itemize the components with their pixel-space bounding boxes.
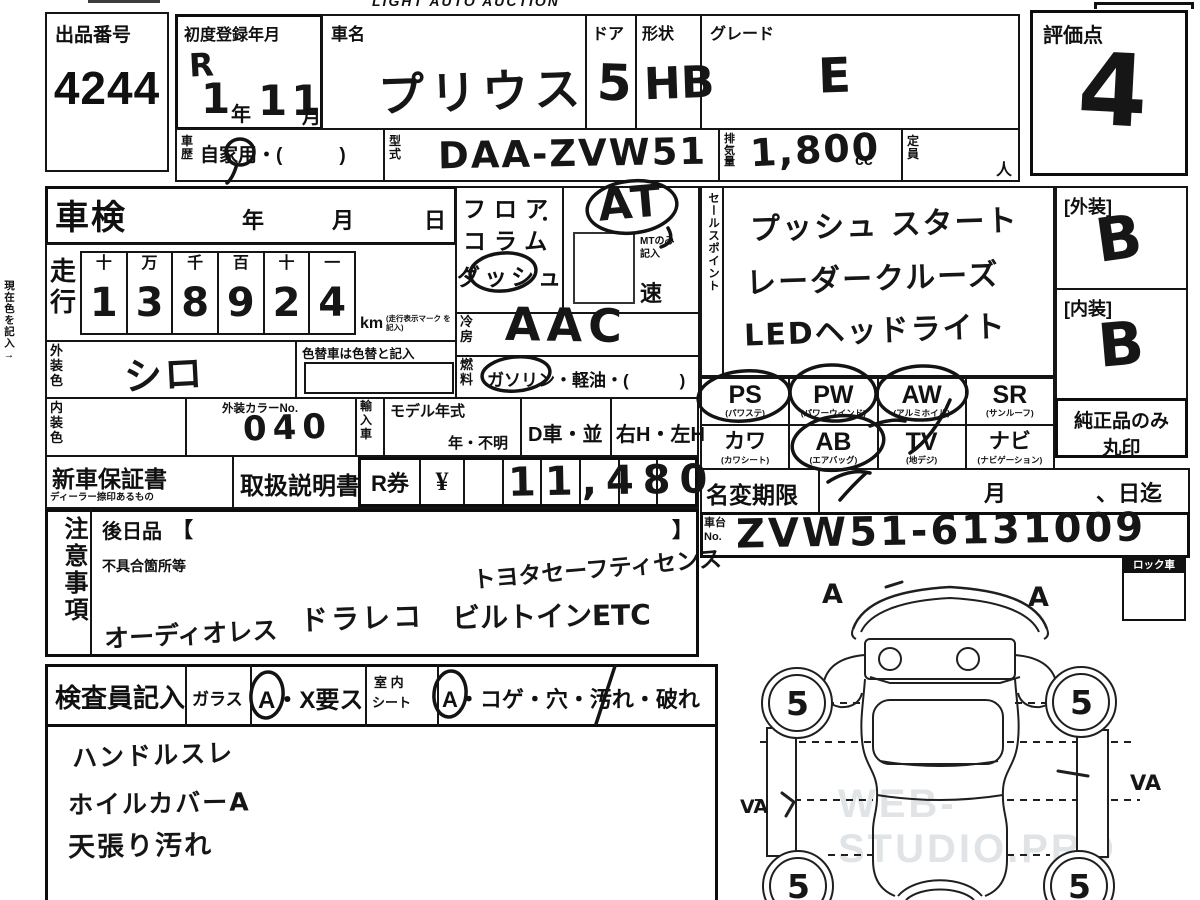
mileage-unit-note: (走行表示マーク を記入) — [386, 314, 452, 332]
right-side-panel — [1077, 730, 1108, 857]
inspector-label: 検査員記入 — [55, 678, 185, 715]
inspector-note-3: 天張り汚れ — [68, 823, 214, 865]
later-items-label: 後日品 — [102, 515, 162, 544]
margin-note: 現在色を記入→ — [2, 280, 17, 410]
transmission-column: コラム — [463, 222, 555, 256]
equipment-cell-pw: PW (パワーウインド) — [790, 379, 878, 424]
mileage-digit-cell: 十 1 — [82, 253, 128, 333]
fuel-options: ガソリン・軽油・( ) — [487, 366, 685, 391]
equipment-sub: (パワーウインド) — [790, 408, 876, 418]
aircon-label: 冷房 — [460, 315, 475, 345]
rear-window-outer — [898, 880, 982, 896]
recycle-label: R券 — [371, 466, 409, 498]
body-midline — [877, 795, 1003, 800]
shaken-label: 車検 — [55, 190, 127, 239]
color-no-value: 040 — [242, 406, 332, 449]
divider — [383, 397, 385, 457]
shaken-month-unit: 月 — [332, 203, 354, 235]
divider — [250, 664, 252, 727]
notes-label: 注意事項 — [56, 516, 91, 652]
equipment-code: PW — [790, 382, 876, 408]
equipment-cell-kawa: カワ (カワシート) — [702, 426, 790, 468]
equipment-sub: (アルミホイル) — [879, 408, 965, 418]
equipment-cell-aw: AW (アルミホイル) — [879, 379, 967, 424]
equipment-sub: (カワシート) — [702, 455, 788, 465]
doors-label: ドア — [592, 20, 635, 44]
genuine-note-1: 純正品のみ — [1058, 406, 1185, 433]
wheel-mark-fr: 5 — [1070, 683, 1093, 722]
recolor-entry-box — [304, 362, 454, 394]
gear-entry-box — [573, 232, 635, 304]
mark-front-right: A — [1028, 582, 1049, 613]
digit-header: 十 — [265, 253, 309, 275]
amount-cell — [465, 460, 504, 504]
divider — [520, 397, 522, 457]
equipment-code: TV — [879, 429, 965, 455]
lot-number-box: 出品番号 4244 — [45, 12, 169, 172]
model-code-value: DAA-ZVW51 — [438, 130, 708, 178]
displacement-unit: cc — [855, 152, 873, 170]
front-bumper-outer — [853, 587, 1047, 629]
mt-note-line2: 記入 — [640, 249, 660, 260]
name-change-month: 月 — [984, 476, 1006, 508]
speed-label: 速 — [640, 276, 662, 308]
seat-label-bottom: シート — [372, 692, 411, 711]
interior-grade-value: B — [1095, 308, 1147, 382]
registration-month-unit: 月 — [302, 102, 321, 129]
mileage-digit-cell: 万 3 — [128, 253, 174, 333]
equipment-sub: (地デジ) — [879, 455, 965, 465]
recolor-cell: 色替車は色替と記入 — [295, 340, 457, 399]
registration-year-unit: 年 — [231, 98, 251, 127]
equipment-code: PS — [702, 382, 788, 408]
digit-header: 一 — [310, 253, 354, 275]
chassis-label: 車台 No. — [704, 516, 726, 545]
divider — [610, 397, 612, 457]
lot-number-value: 4244 — [47, 61, 167, 115]
recycle-amount: 11,480 — [508, 456, 717, 506]
warranty-sub: ディーラー捺印あるもの — [50, 489, 154, 503]
sales-point-2: レーダークルーズ — [745, 250, 1000, 303]
dealer-car-label: D車・並 — [528, 418, 602, 447]
recycle-currency-cell: ¥ — [421, 460, 465, 504]
import-label: 輸入車 — [360, 400, 374, 441]
equipment-code: カワ — [702, 429, 788, 455]
transmission-value: AT — [596, 175, 665, 231]
digit-value: 1 — [82, 275, 126, 333]
chassis-value: ZVW51-6131009 — [736, 504, 1147, 557]
digit-value: 9 — [219, 275, 263, 333]
grade-value: E — [817, 47, 852, 104]
divider — [818, 468, 820, 514]
mileage-digit-grid: 十 1 万 3 千 8 百 9 十 2 一 4 — [80, 251, 356, 335]
bumper-tick — [886, 582, 902, 587]
mark-right-side: VA — [1130, 771, 1162, 795]
mileage-unit: km — [360, 315, 383, 333]
car-diagram: A A VA VA 5 5 5 5 — [740, 555, 1200, 900]
model-code-label: 型式 — [389, 135, 403, 161]
sales-points-label: セールスポイント — [705, 192, 721, 372]
scan-artifact-box — [1094, 2, 1194, 9]
displacement-label: 排気量 — [724, 134, 737, 169]
equipment-cell-ps: PS (パワステ) — [702, 379, 790, 424]
recolor-note: 色替車は色替と記入 — [302, 343, 457, 362]
seat-label-top: 室 内 — [374, 672, 404, 691]
mark-front-left: A — [822, 579, 843, 610]
windshield — [873, 700, 1003, 764]
digit-header: 千 — [173, 253, 217, 275]
digit-value: 2 — [265, 275, 309, 333]
seat-value: A・コゲ・穴・汚れ・破れ — [442, 682, 700, 714]
equipment-row-1: PS (パワステ) PW (パワーウインド) AW (アルミホイル) SR (サ… — [700, 377, 1055, 426]
aircon-value: AAC — [505, 297, 629, 353]
notes-hw-drarecо: ドラレコ — [299, 595, 424, 639]
hood-panel — [865, 639, 1015, 679]
glass-value: A・X要ス — [258, 680, 363, 715]
name-change-label: 名変期限 — [706, 476, 798, 510]
equipment-sub: (ナビゲーション) — [967, 455, 1053, 465]
model-year-options: 年・不明 — [448, 432, 508, 453]
equipment-sub: (エアバッグ) — [790, 455, 876, 465]
wheel-mark-rl: 5 — [787, 867, 810, 900]
history-label: 車歴 — [181, 135, 195, 161]
glass-label: ガラス — [192, 685, 243, 710]
mt-note-line1: MTのみ — [640, 236, 674, 247]
registration-label: 初度登録年月 — [184, 21, 320, 45]
equipment-sub: (パワステ) — [702, 408, 788, 418]
divider — [562, 186, 564, 314]
shaken-day-unit: 日 — [424, 203, 446, 235]
score-value: 4 — [1075, 30, 1151, 150]
divider — [437, 664, 439, 727]
model-year-label: モデル年式 — [390, 400, 465, 421]
wheel-mark-rr: 5 — [1068, 867, 1091, 900]
front-bumper-inner — [861, 598, 1039, 632]
exterior-grade-value: B — [1091, 201, 1146, 277]
history-value: 自家用・( ) — [200, 140, 346, 167]
shaken-year-unit: 年 — [242, 203, 264, 235]
doors-value: 5 — [596, 53, 633, 112]
bumper-end-right — [1044, 629, 1048, 639]
equipment-row-2: カワ (カワシート) AB (エアバッグ) TV (地デジ) ナビ (ナビゲーシ… — [700, 424, 1055, 470]
exterior-color-label: 外装色 — [50, 344, 65, 389]
mileage-digit-cell: 十 2 — [265, 253, 311, 333]
defects-label: 不具合箇所等 — [102, 556, 186, 576]
notes-hw-etc: ビルトインETC — [452, 593, 651, 636]
handle-label: 右H・左H — [616, 418, 705, 447]
digit-header: 十 — [82, 253, 126, 275]
divider — [355, 397, 357, 457]
divider — [365, 664, 367, 727]
bracket-close: 】 — [672, 514, 693, 544]
wheel-mark-fl: 5 — [786, 684, 809, 723]
shape-label: 形状 — [642, 20, 700, 44]
chassis-label-top: 車台 — [704, 517, 726, 529]
digit-value: 4 — [310, 275, 354, 333]
chassis-label-bottom: No. — [704, 531, 722, 543]
digit-value: 3 — [128, 275, 172, 333]
recycle-label-cell: R券 — [361, 460, 421, 504]
manual-label: 取扱説明書 — [240, 466, 360, 501]
equipment-cell-ab: AB (エアバッグ) — [790, 426, 878, 468]
equipment-code: AB — [790, 429, 876, 455]
bumper-end-left — [852, 629, 856, 639]
rear-window-inner — [906, 890, 974, 900]
mileage-digit-cell: 一 4 — [310, 253, 354, 333]
auction-house-title: LIGHT AUTO AUCTION — [372, 0, 560, 9]
sales-point-1: プッシュ スタート — [749, 195, 1019, 248]
digit-value: 8 — [173, 275, 217, 333]
mileage-digit-cell: 千 8 — [173, 253, 219, 333]
sales-point-3: LEDヘッドライト — [743, 301, 1007, 354]
scan-artifact-line — [88, 0, 160, 3]
equipment-cell-tv: TV (地デジ) — [879, 426, 967, 468]
car-name-label: 車名 — [331, 20, 585, 45]
divider — [232, 455, 234, 509]
interior-color-label: 内装色 — [50, 401, 65, 446]
equipment-sub: (サンルーフ) — [967, 408, 1053, 418]
mt-note: MTのみ 記入 — [640, 236, 674, 261]
lot-number-label: 出品番号 — [55, 20, 167, 47]
inspector-note-1: ハンドルスレ — [71, 733, 234, 775]
car-name-value: プリウス — [377, 52, 587, 125]
mark-left-side: VA — [740, 796, 768, 818]
digit-header: 百 — [219, 253, 263, 275]
divider — [185, 397, 187, 457]
equipment-code: SR — [967, 382, 1053, 408]
grade-box: グレード — [700, 14, 1020, 130]
divider — [185, 664, 187, 727]
digit-header: 万 — [128, 253, 172, 275]
transmission-dash: ダッシュ — [457, 258, 565, 292]
mileage-label: 走行 — [50, 256, 78, 318]
exterior-color-value: シロ — [123, 342, 206, 401]
capacity-unit: 人 — [996, 156, 1012, 180]
equipment-cell-navi: ナビ (ナビゲーション) — [967, 426, 1053, 468]
divider — [722, 186, 724, 377]
registration-year: 1 — [201, 74, 230, 123]
capacity-label: 定員 — [907, 135, 921, 161]
equipment-code: AW — [879, 382, 965, 408]
mileage-digit-cell: 百 9 — [219, 253, 265, 333]
genuine-parts-box: 純正品のみ 丸印 — [1055, 398, 1188, 458]
bracket-open: 【 — [172, 514, 193, 544]
inspector-note-2: ホイルカバーA — [68, 782, 251, 821]
fuel-label: 燃料 — [460, 358, 475, 388]
auction-sheet: LIGHT AUTO AUCTION 出品番号 4244 初度登録年月 R 1 … — [0, 0, 1200, 900]
yen-symbol: ¥ — [436, 467, 449, 497]
grade-label: グレード — [710, 20, 1018, 44]
equipment-code: ナビ — [967, 429, 1053, 455]
equipment-cell-sr: SR (サンルーフ) — [967, 379, 1053, 424]
genuine-note-2: 丸印 — [1058, 433, 1185, 460]
name-change-day: 、日迄 — [1096, 476, 1162, 508]
